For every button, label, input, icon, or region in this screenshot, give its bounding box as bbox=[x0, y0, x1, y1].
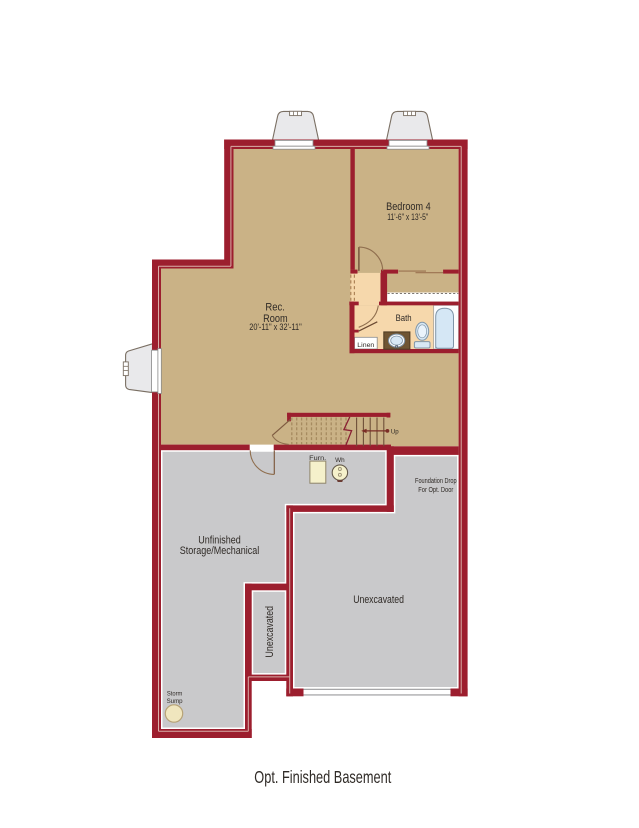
svg-text:Bath: Bath bbox=[396, 313, 412, 324]
svg-text:Furn.: Furn. bbox=[309, 455, 326, 462]
svg-text:Up: Up bbox=[391, 429, 399, 436]
svg-text:Storage/Mechanical: Storage/Mechanical bbox=[180, 545, 260, 557]
svg-text:For Opt. Door: For Opt. Door bbox=[418, 487, 454, 494]
svg-text:Unexcavated: Unexcavated bbox=[353, 594, 404, 606]
svg-text:20'-11" x 32'-11": 20'-11" x 32'-11" bbox=[249, 322, 302, 332]
svg-text:Wh: Wh bbox=[335, 457, 345, 464]
svg-text:Opt. Finished Basement: Opt. Finished Basement bbox=[254, 767, 391, 787]
svg-text:11'-6" x 13'-5": 11'-6" x 13'-5" bbox=[387, 212, 428, 222]
svg-text:Sump: Sump bbox=[167, 698, 183, 705]
svg-text:Unexcavated: Unexcavated bbox=[264, 606, 276, 658]
svg-text:Storm: Storm bbox=[167, 691, 183, 698]
svg-text:Foundation Drop: Foundation Drop bbox=[415, 478, 457, 485]
svg-text:Linen: Linen bbox=[357, 342, 374, 349]
svg-text:Rec.: Rec. bbox=[265, 302, 285, 314]
